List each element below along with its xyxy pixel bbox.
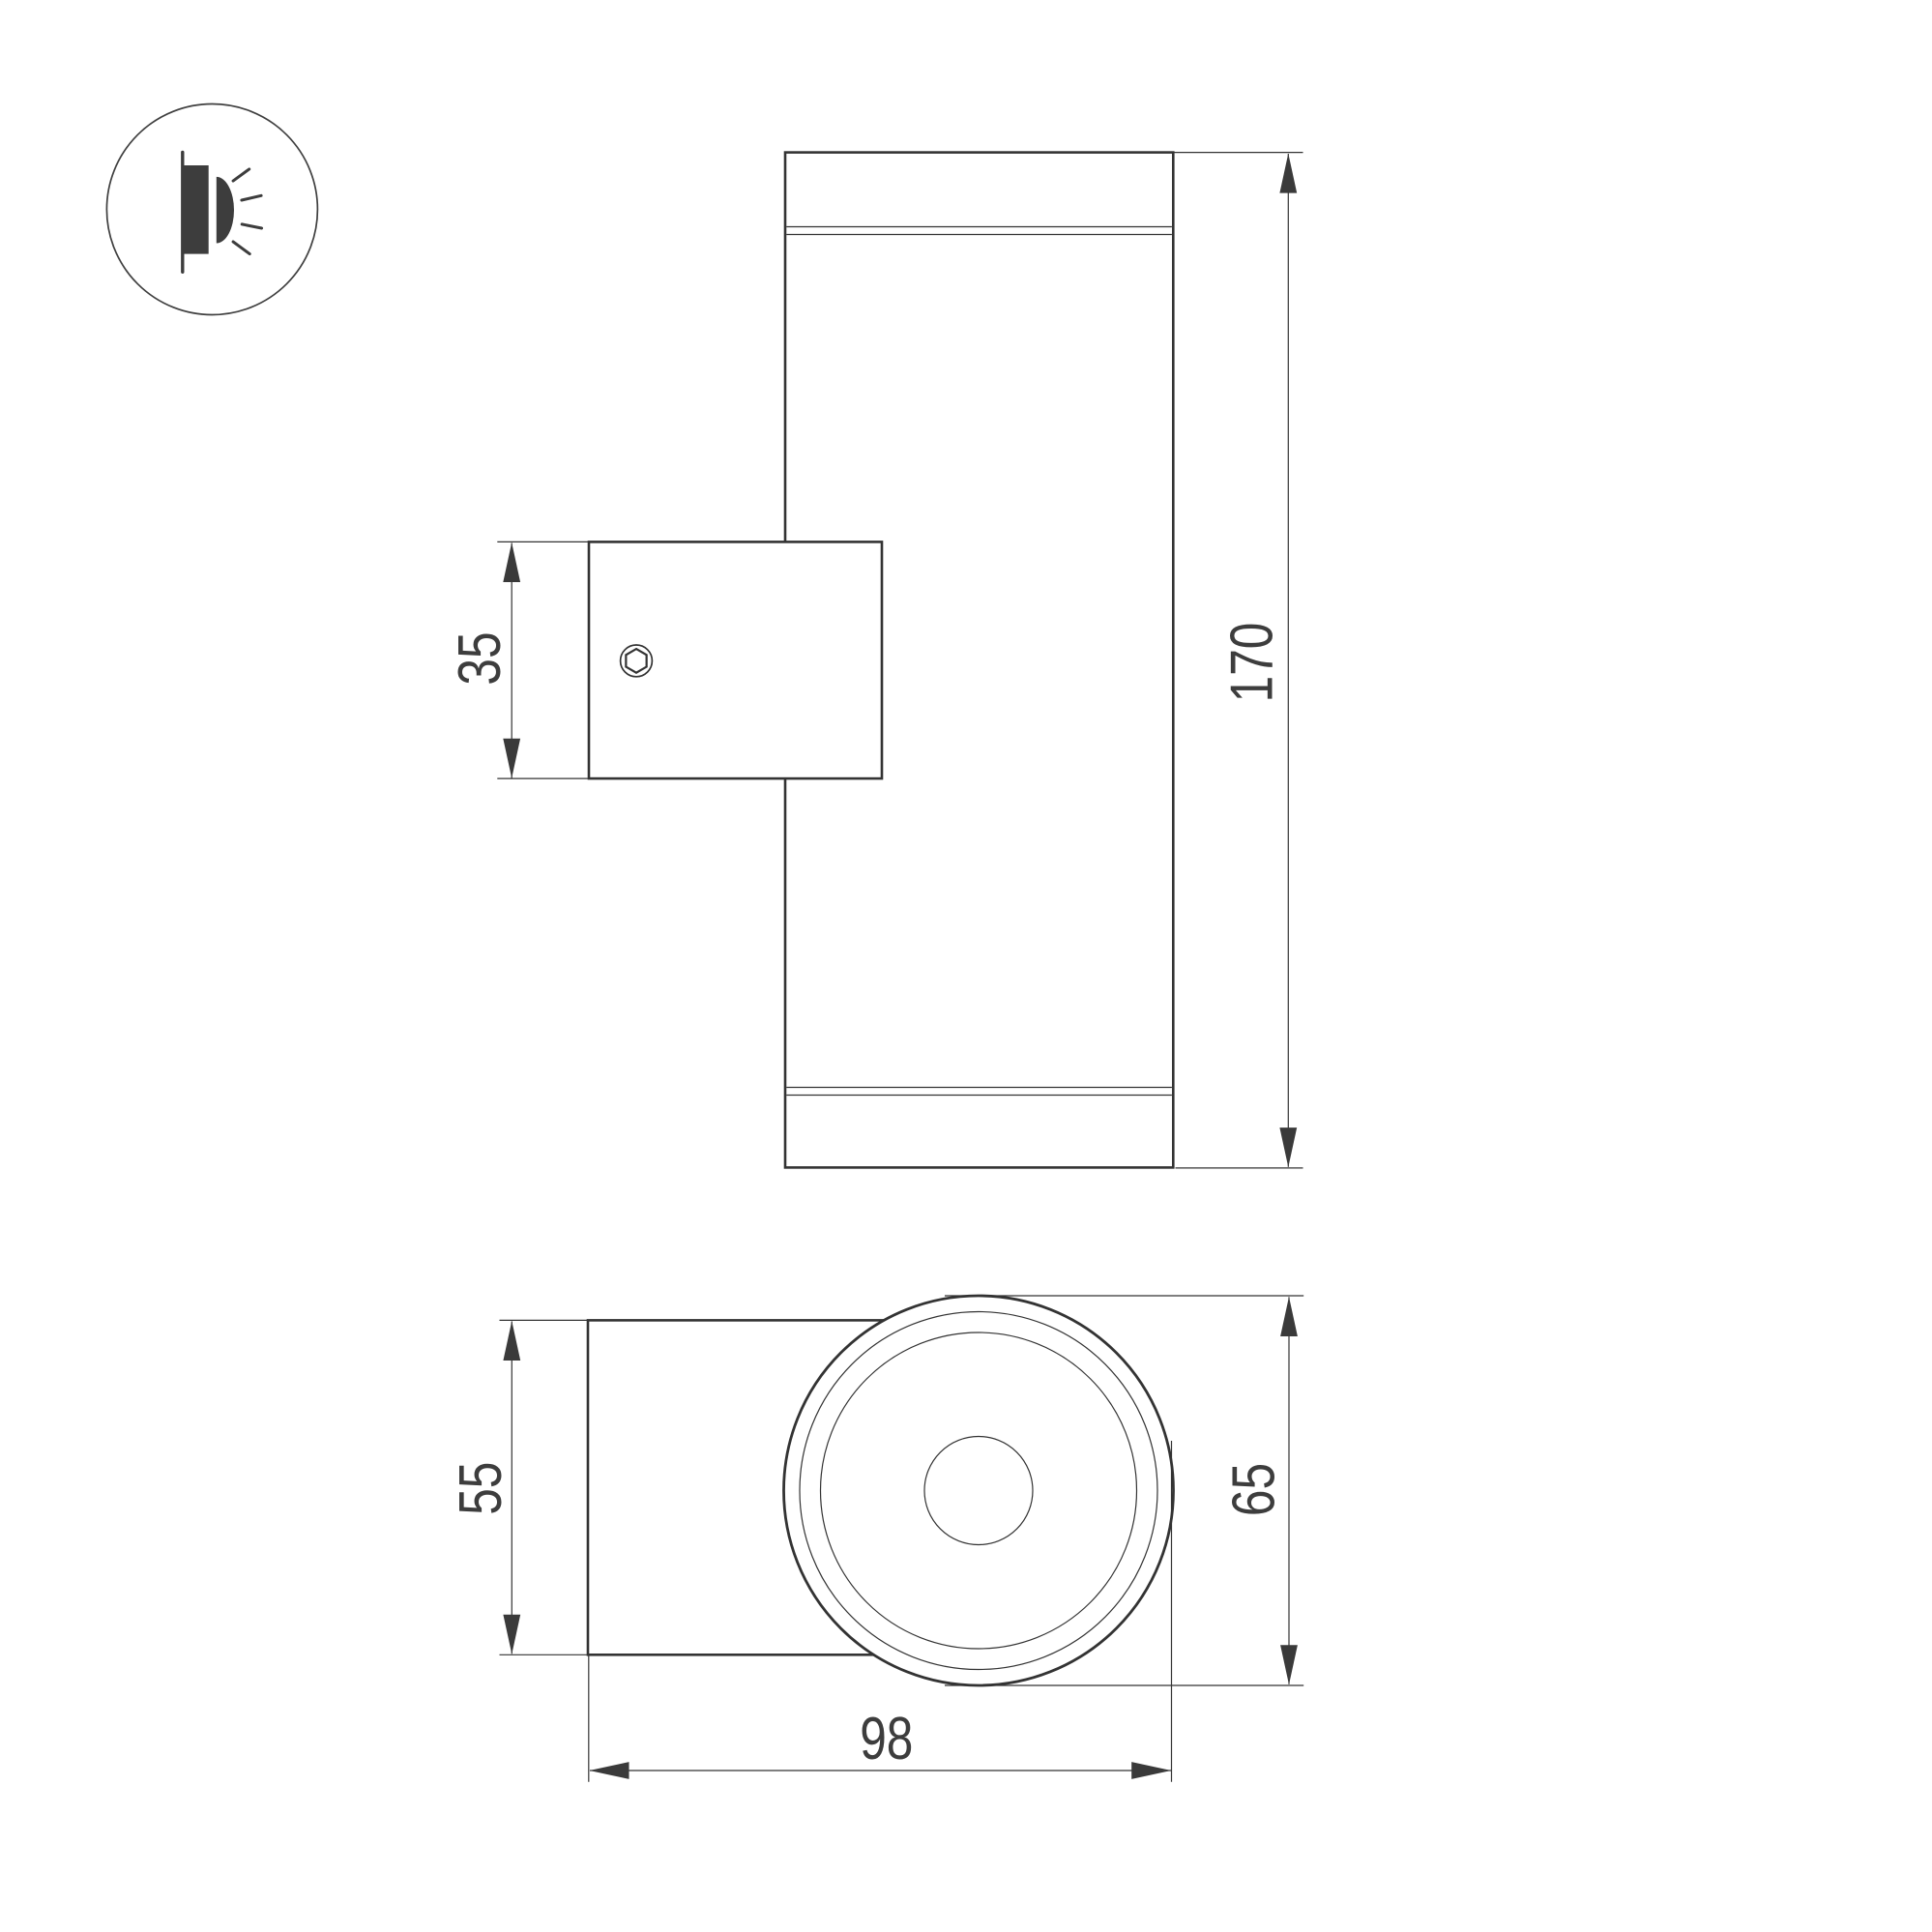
svg-text:98: 98 bbox=[860, 1705, 913, 1772]
svg-text:35: 35 bbox=[446, 631, 513, 685]
svg-text:65: 65 bbox=[1219, 1463, 1287, 1516]
svg-text:55: 55 bbox=[447, 1462, 514, 1515]
svg-text:170: 170 bbox=[1217, 623, 1285, 703]
